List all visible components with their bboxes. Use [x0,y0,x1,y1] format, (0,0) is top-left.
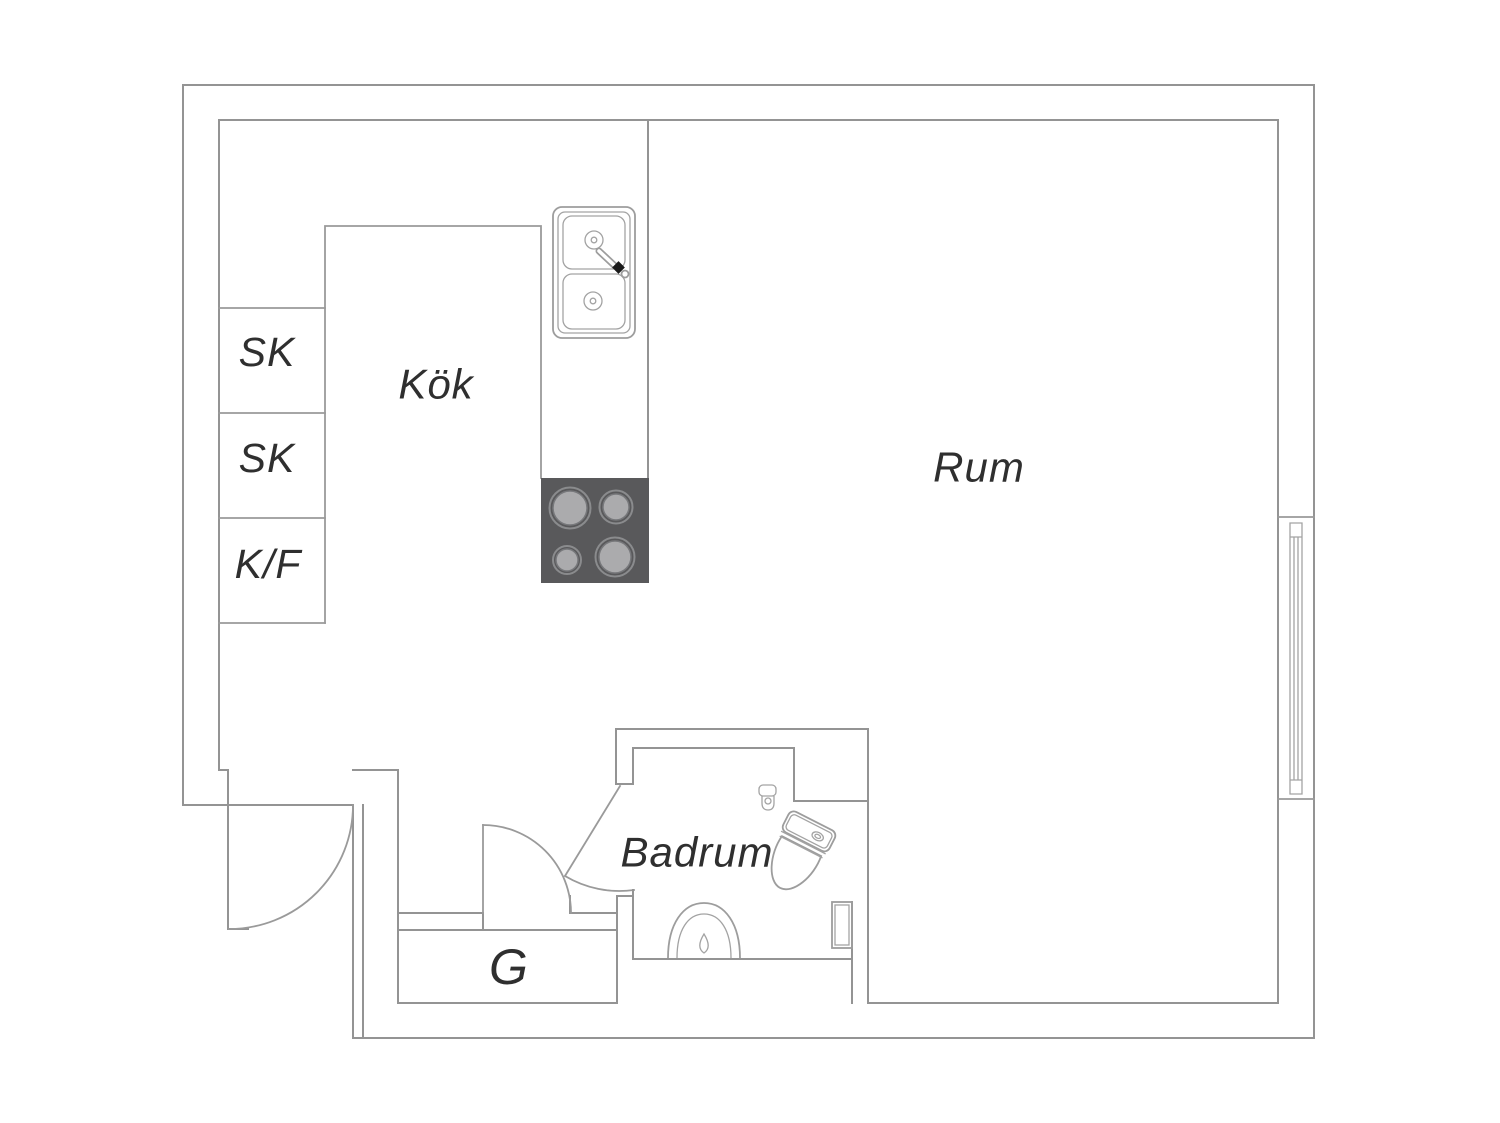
entrance-door-arc [229,805,353,929]
bathroom-door-leaf [565,786,620,876]
bathroom-duct [832,902,852,948]
window-sill-lines [1278,517,1314,799]
label-cabinet-sk-1: SK [239,329,296,375]
bathroom-door-arc [565,876,634,891]
hall-closet-wall-band [398,896,617,930]
label-fridge-freezer: K/F [235,541,303,587]
window-frame [1290,523,1302,794]
window-glazing [1294,537,1298,780]
floor-plan-drawing: SK SK K/F Kök Rum Badrum G [0,0,1500,1123]
label-cabinet-sk-2: SK [239,435,296,481]
washbasin-faucet-drop [700,934,708,953]
outer-wall [183,85,1314,1038]
tp-holder-axle [765,798,771,804]
doors [229,786,634,929]
label-room: Rum [933,444,1025,491]
label-kitchen: Kök [398,361,474,408]
walls [183,85,1314,1038]
burner-top-left [553,491,587,525]
kitchen-counter-edge [325,226,541,623]
washbasin [668,903,740,958]
bathroom-lower-left-and-bottom-wall [633,890,852,959]
closet-door-arc [483,825,571,913]
bathroom-inner-top-and-shaft-nook [633,748,868,801]
inner-wall-left [219,120,248,929]
label-closet: G [489,939,529,995]
toilet-paper-holder [759,785,776,810]
burner-top-right [603,494,629,520]
kitchen-stove [541,478,649,583]
tp-holder-roll [759,785,776,796]
window [1278,517,1314,799]
burner-bottom-right [599,541,631,573]
duct-inner [835,905,849,945]
washbasin-inner-rim [677,914,731,958]
faucet-spout-tip [622,271,629,278]
washbasin-outer-rim [668,903,740,958]
floor-plan-page: SK SK K/F Kök Rum Badrum G [0,0,1500,1123]
bathroom-left-wall [616,729,633,784]
burner-bottom-left [556,549,578,571]
label-bathroom: Badrum [620,829,773,876]
kitchen-sink [553,207,635,338]
stove-top-surface [541,478,649,583]
